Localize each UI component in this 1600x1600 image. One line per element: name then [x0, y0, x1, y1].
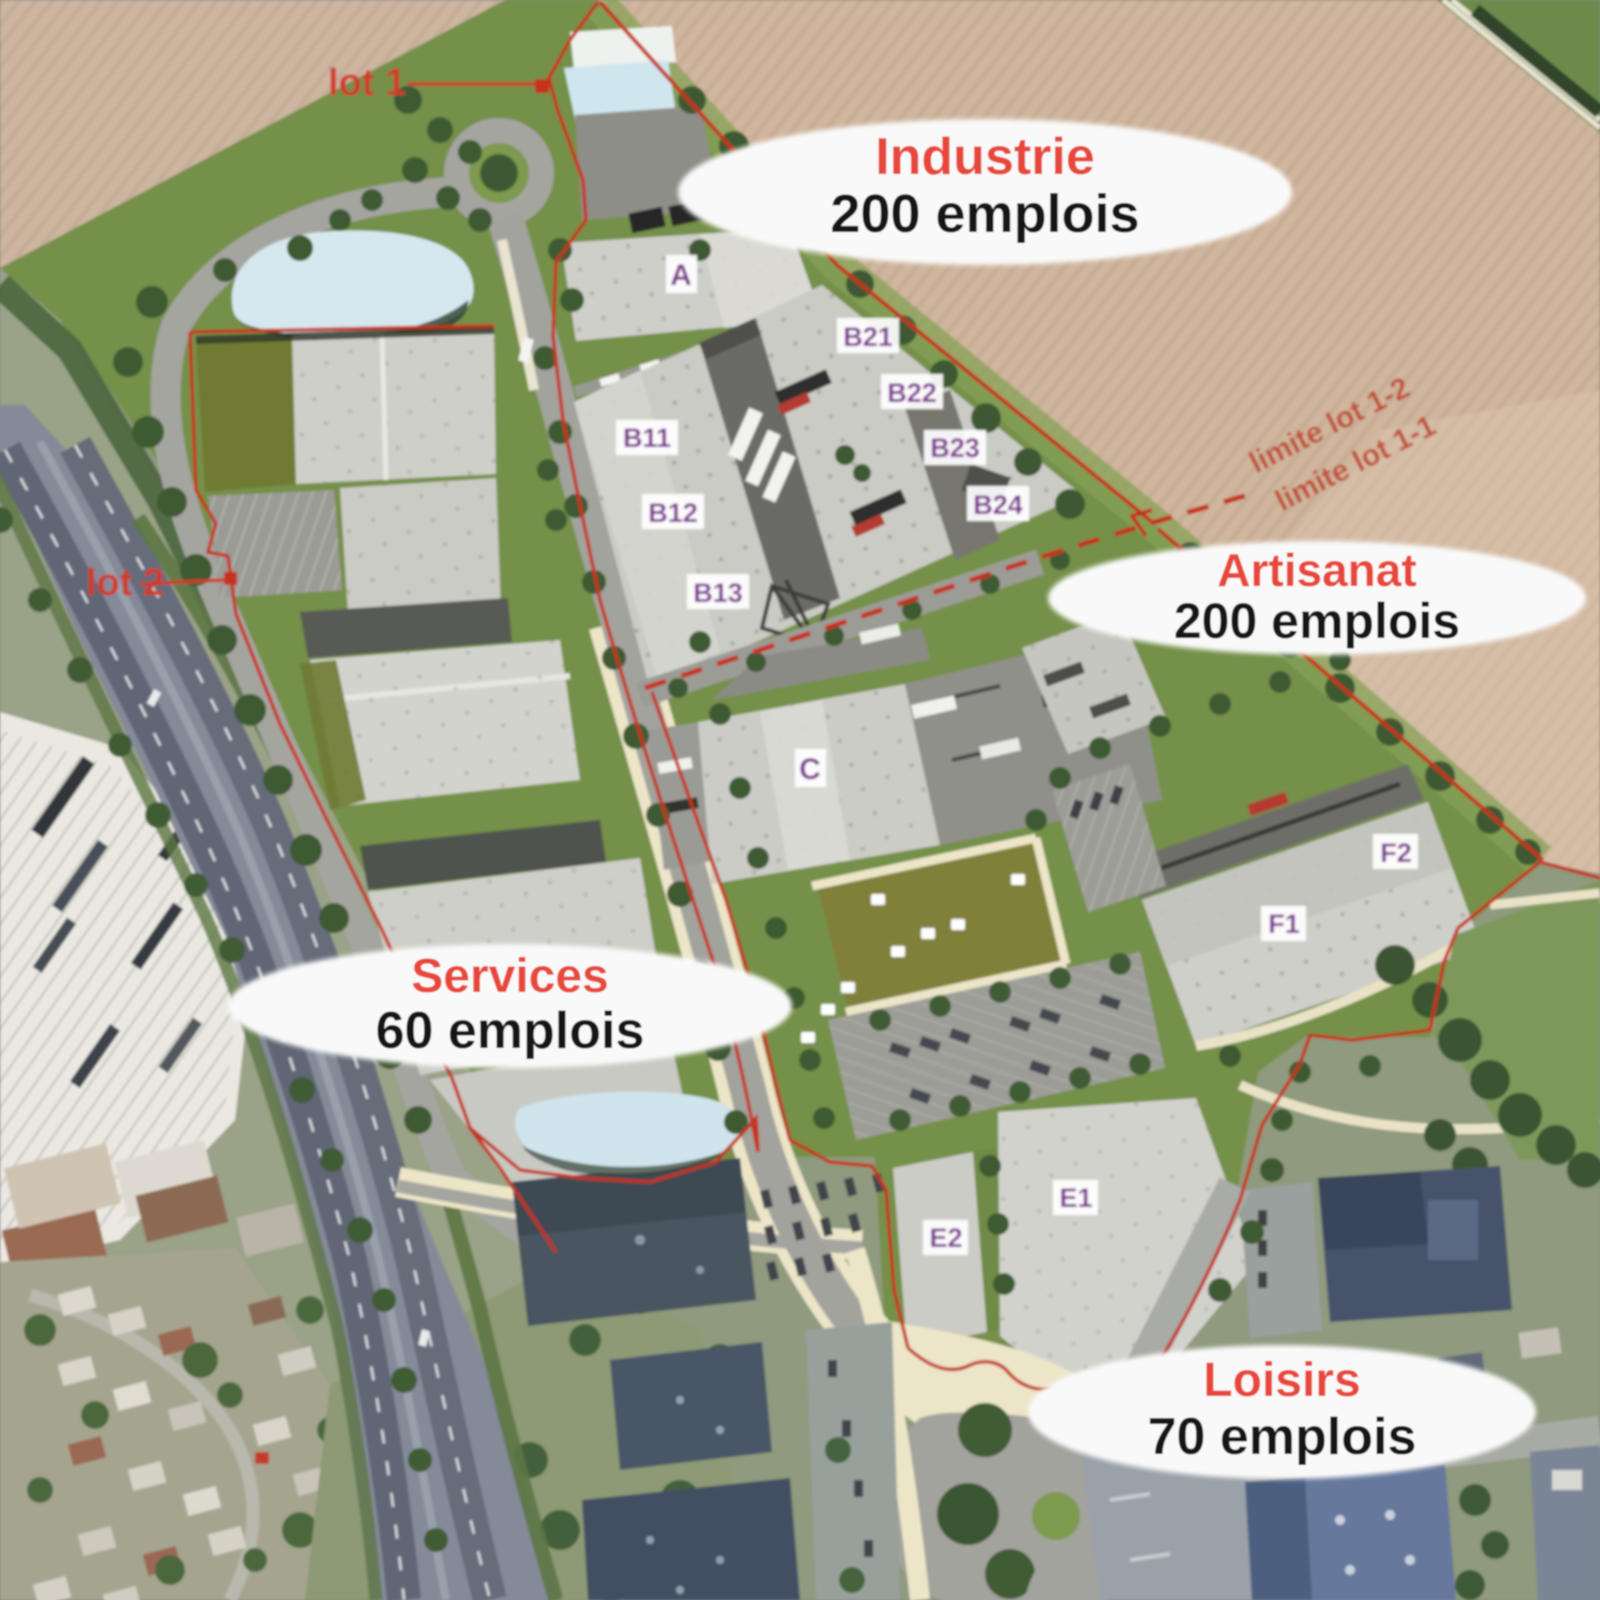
svg-text:B13: B13: [693, 578, 743, 608]
svg-text:Artisanat: Artisanat: [1217, 544, 1416, 596]
svg-text:F1: F1: [1268, 909, 1300, 939]
svg-text:Loisirs: Loisirs: [1203, 1354, 1360, 1407]
svg-text:Services: Services: [411, 950, 609, 1003]
svg-text:B21: B21: [843, 322, 893, 352]
svg-text:70 emplois: 70 emplois: [1148, 1408, 1417, 1466]
svg-text:200 emplois: 200 emplois: [830, 184, 1139, 244]
svg-text:A: A: [670, 259, 692, 292]
svg-text:B23: B23: [930, 433, 980, 463]
svg-text:B22: B22: [887, 378, 937, 408]
svg-text:C: C: [799, 753, 821, 786]
svg-text:B24: B24: [973, 490, 1023, 520]
svg-text:Industrie: Industrie: [875, 128, 1095, 186]
svg-text:60 emplois: 60 emplois: [376, 1002, 645, 1060]
svg-text:E1: E1: [1059, 1183, 1092, 1213]
svg-text:lot 1: lot 1: [328, 62, 406, 104]
svg-text:E2: E2: [929, 1223, 962, 1253]
svg-text:B11: B11: [623, 423, 671, 453]
svg-text:200 emplois: 200 emplois: [1174, 593, 1460, 649]
svg-text:B12: B12: [648, 498, 698, 528]
svg-text:F2: F2: [1380, 838, 1412, 868]
